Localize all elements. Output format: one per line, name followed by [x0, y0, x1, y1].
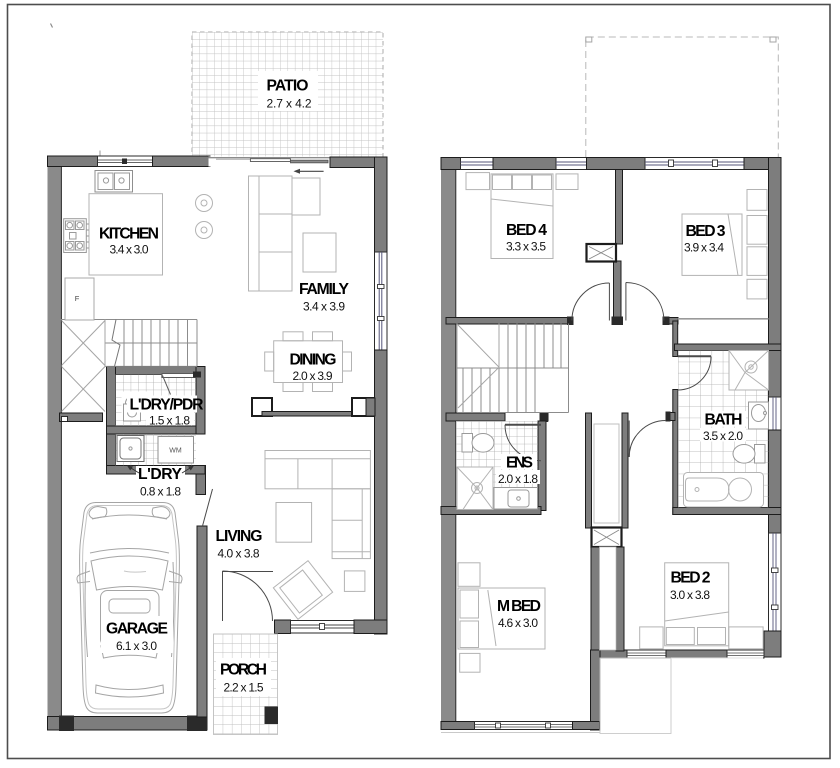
svg-text:BED 4: BED 4 [506, 222, 547, 239]
svg-text:4.6 x 3.0: 4.6 x 3.0 [498, 616, 538, 630]
svg-text:3.9 x 3.4: 3.9 x 3.4 [684, 241, 724, 255]
svg-text:BATH: BATH [705, 412, 743, 429]
svg-text:3.5 x 2.0: 3.5 x 2.0 [703, 429, 743, 443]
svg-text:PATIO: PATIO [267, 78, 309, 95]
svg-text:2.0 x 3.9: 2.0 x 3.9 [293, 369, 333, 383]
svg-text:BED 2: BED 2 [671, 570, 711, 587]
svg-text:0.8 x 1.8: 0.8 x 1.8 [140, 485, 181, 499]
svg-text:6.1 x 3.0: 6.1 x 3.0 [116, 639, 157, 653]
svg-text:PORCH: PORCH [220, 662, 267, 679]
svg-text:M BED: M BED [497, 598, 541, 615]
svg-text:ENS: ENS [506, 455, 533, 472]
svg-text:DINING: DINING [290, 352, 337, 369]
svg-text:3.4 x 3.9: 3.4 x 3.9 [303, 300, 345, 314]
svg-text:2.2 x 1.5: 2.2 x 1.5 [224, 681, 264, 695]
svg-text:3.4 x 3.0: 3.4 x 3.0 [110, 243, 149, 257]
svg-text:3.3 x 3.5: 3.3 x 3.5 [506, 240, 546, 254]
svg-text:4.0 x 3.8: 4.0 x 3.8 [218, 547, 260, 561]
svg-text:GARAGE: GARAGE [106, 621, 168, 638]
svg-text:F: F [75, 294, 80, 303]
svg-text:KITCHEN: KITCHEN [99, 226, 159, 243]
svg-text:FAMILY: FAMILY [299, 281, 350, 298]
svg-text:3.0 x 3.8: 3.0 x 3.8 [670, 588, 710, 602]
svg-text:2.0 x 1.8: 2.0 x 1.8 [498, 472, 538, 486]
svg-text:L'DRY/PDR: L'DRY/PDR [130, 397, 204, 414]
svg-text:L'DRY: L'DRY [138, 466, 183, 483]
svg-text:LIVING: LIVING [216, 528, 263, 545]
svg-text:1.5 x 1.8: 1.5 x 1.8 [149, 414, 190, 428]
svg-text:2.7 x 4.2: 2.7 x 4.2 [267, 97, 312, 111]
svg-text:WM: WM [169, 448, 182, 455]
svg-text:BED 3: BED 3 [686, 223, 726, 240]
